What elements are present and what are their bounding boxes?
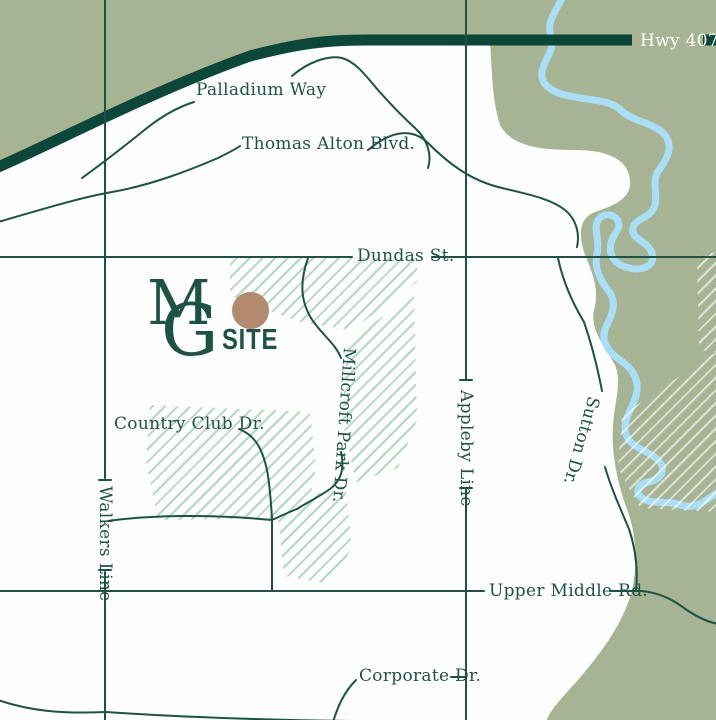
road-label-thomas-alton: Thomas Alton Blvd. bbox=[242, 134, 415, 154]
road-label-country-club: Country Club Dr. bbox=[114, 414, 265, 434]
road-country-club-dr bbox=[239, 429, 272, 519]
site-location-map: Hwy 407 Palladium Way Thomas Alton Blvd.… bbox=[0, 0, 716, 720]
road-local-west bbox=[108, 516, 272, 521]
road-label-dundas-st: Dundas St. bbox=[357, 246, 455, 266]
logo-letter-g: G bbox=[161, 294, 219, 366]
road-bottom-edge bbox=[0, 700, 350, 720]
road-label-walkers-line: Walkers Line bbox=[95, 486, 115, 602]
road-palladium-way bbox=[82, 57, 429, 178]
site-label: SITE bbox=[222, 324, 278, 357]
road-label-palladium-way: Palladium Way bbox=[196, 80, 326, 100]
road-label-upper-middle: Upper Middle Rd. bbox=[489, 581, 648, 601]
road-local-northeast bbox=[272, 509, 297, 520]
road-appleby-line bbox=[460, 0, 472, 720]
road-thomas-alton-west bbox=[0, 146, 240, 222]
road-sutton-dr bbox=[558, 258, 637, 590]
road-walkers-line bbox=[99, 0, 111, 720]
road-label-hwy-407: Hwy 407 bbox=[640, 31, 716, 51]
road-label-corporate-dr: Corporate Dr. bbox=[359, 666, 481, 686]
road-label-appleby-line: Appleby Line bbox=[456, 390, 476, 507]
